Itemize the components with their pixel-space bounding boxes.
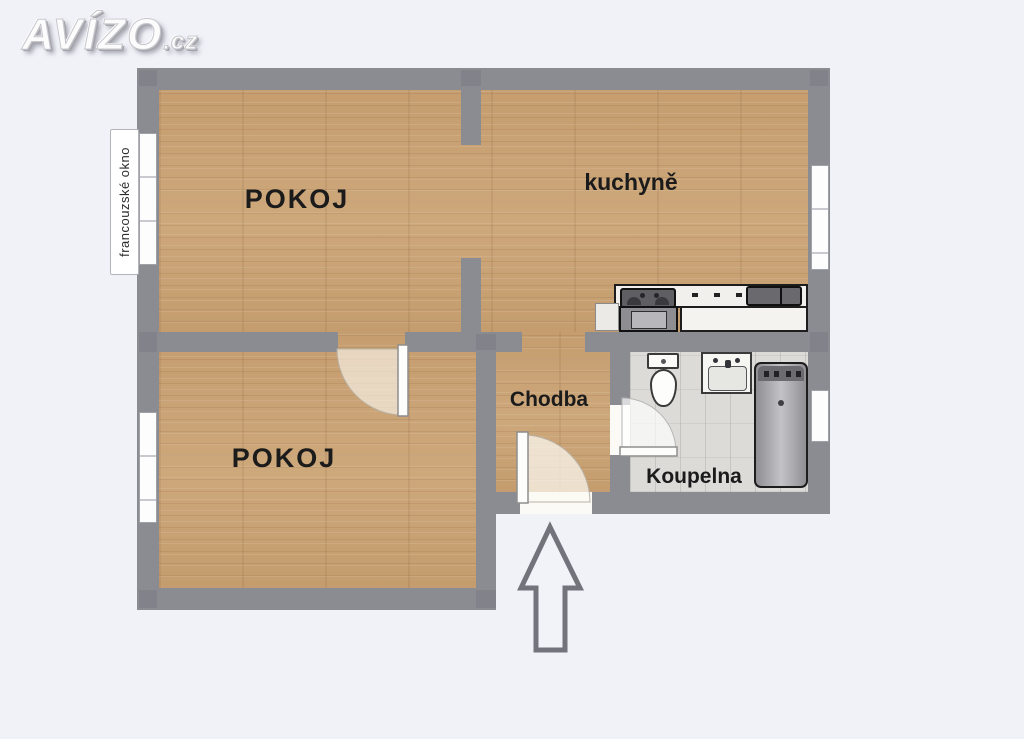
wall-junction [139, 590, 157, 608]
sink-tap [735, 358, 740, 363]
bathroom-door-opening [610, 405, 630, 455]
room-label-pokoj-top: POKOJ [227, 184, 367, 215]
wall-divider-upper [461, 88, 481, 145]
room-label-kuchyne: kuchyně [561, 169, 701, 196]
entrance-arrow-icon [521, 527, 580, 650]
wall-junction [810, 332, 828, 352]
room-label-pokoj-bottom: POKOJ [214, 443, 354, 474]
french-window-label: francouzské okno [110, 129, 139, 275]
counter-vent-marks [692, 293, 744, 297]
toilet-flush-button [661, 359, 666, 364]
floor-chodba [476, 332, 610, 492]
wall-bath-west-upper [610, 352, 630, 405]
wall-junction [461, 70, 481, 86]
bathtub-knob [764, 371, 769, 377]
wall-divider-lower [461, 258, 481, 332]
entrance-door-opening [520, 492, 592, 514]
stove-knob [640, 293, 645, 298]
wall-junction [139, 332, 157, 352]
room-label-chodba: Chodba [489, 388, 609, 412]
oven-door [631, 311, 667, 329]
wall-mid-left [159, 332, 338, 352]
wall-south-left [494, 492, 520, 514]
wall-junction [476, 334, 496, 350]
bathtub-faucet-panel [758, 366, 804, 381]
kitchen-cabinet-long [680, 306, 808, 332]
bathtub-knob [774, 371, 779, 377]
sink-faucet [725, 360, 731, 368]
wall-mid-center [405, 332, 522, 352]
french-window-label-text: francouzské okno [117, 147, 132, 257]
wall-bottom-pokoj [137, 588, 494, 610]
stove-burner [627, 297, 641, 305]
hob-divider [780, 288, 782, 304]
kitchen-cabinet-small [595, 303, 619, 331]
sink-basin [708, 366, 747, 391]
oven-front [619, 306, 678, 332]
floorplan-image: francouzské okno [0, 0, 1024, 739]
wall-top [137, 68, 830, 90]
bathtub-knob [786, 371, 791, 377]
logo-text: AVÍZO [22, 10, 163, 59]
logo-tld: .cz [163, 28, 198, 55]
wall-junction [139, 70, 157, 86]
wall-junction [476, 590, 496, 608]
wall-junction [810, 70, 828, 86]
toilet-tank [647, 353, 679, 369]
window-bathroom [811, 390, 829, 442]
wall-south-right [592, 492, 830, 514]
avizo-logo: AVÍZO.cz [22, 10, 198, 60]
kitchen-hob [746, 286, 802, 306]
stove [620, 288, 676, 308]
sink-tap [713, 358, 718, 363]
wall-mid-right [585, 332, 808, 352]
wall-right [808, 68, 830, 514]
bathtub-drain [778, 400, 784, 406]
bathroom-sink [701, 352, 752, 394]
window-kitchen [811, 165, 829, 270]
room-label-koupelna: Koupelna [624, 465, 764, 489]
window-french [139, 133, 157, 265]
stove-burner [655, 297, 669, 305]
window-pokoj-bottom [139, 412, 157, 523]
bathtub-knob [796, 371, 801, 377]
